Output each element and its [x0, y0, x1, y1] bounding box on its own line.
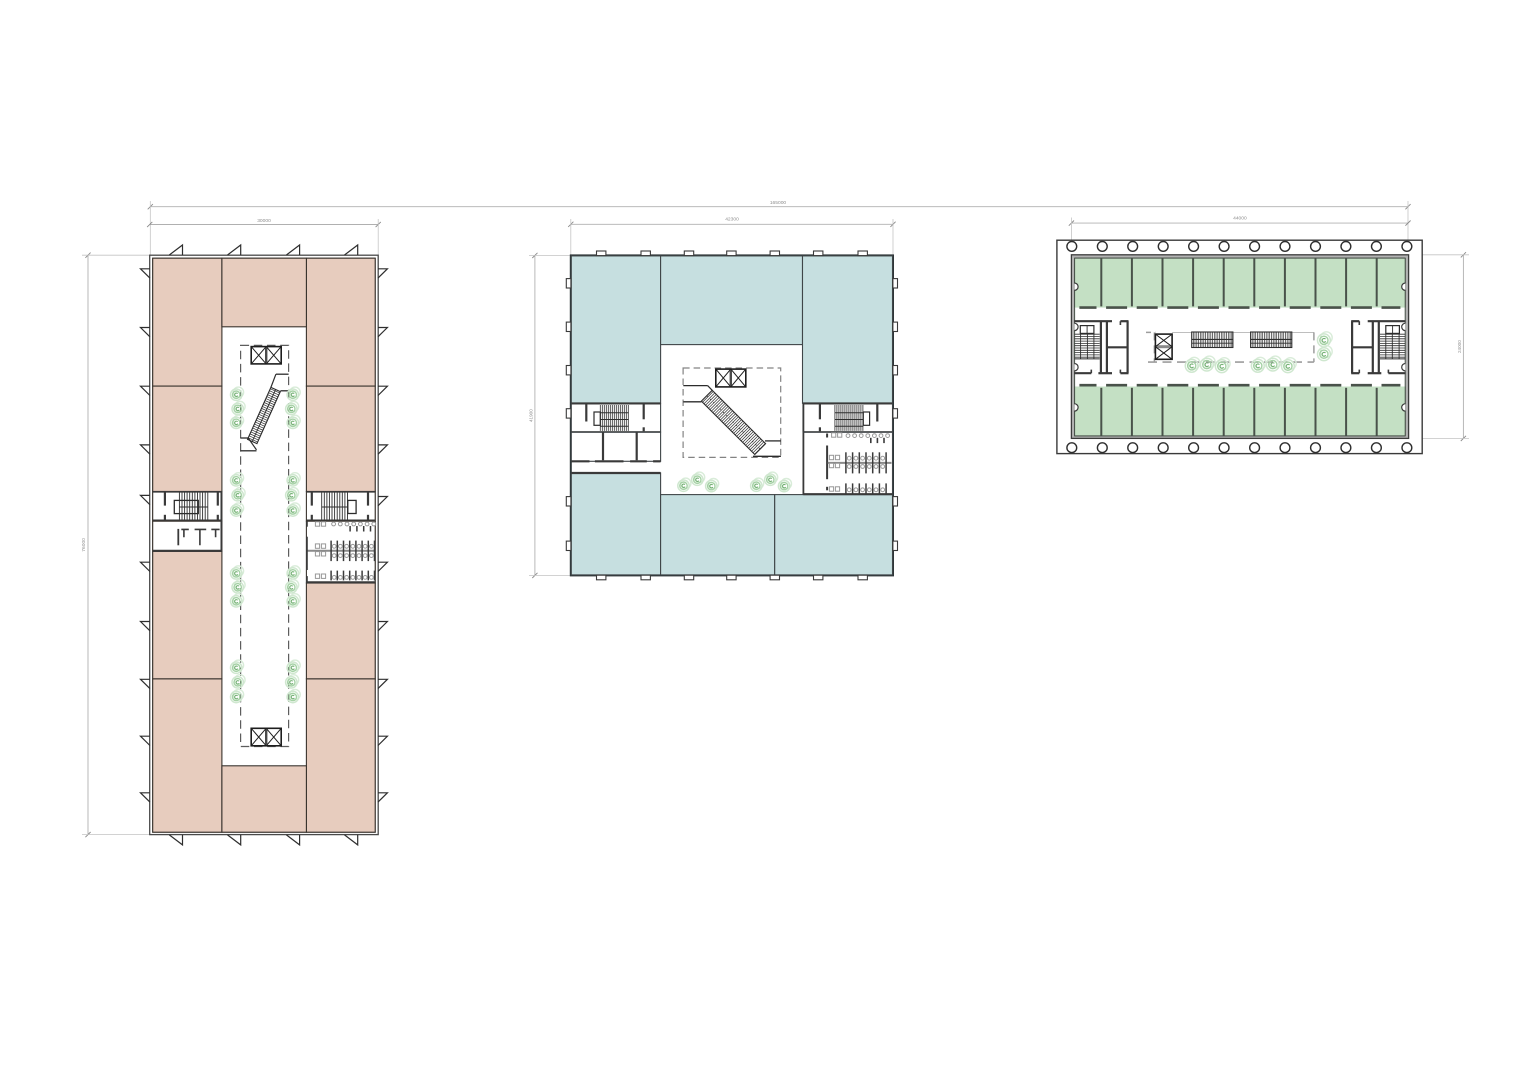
svg-text:30000: 30000 [257, 218, 271, 224]
svg-text:42300: 42300 [725, 217, 739, 223]
svg-text:44000: 44000 [1233, 216, 1247, 222]
svg-text:41900: 41900 [528, 409, 533, 422]
svg-text:24000: 24000 [1457, 340, 1462, 353]
svg-text:76000: 76000 [81, 538, 87, 552]
svg-text:165000: 165000 [770, 200, 787, 206]
